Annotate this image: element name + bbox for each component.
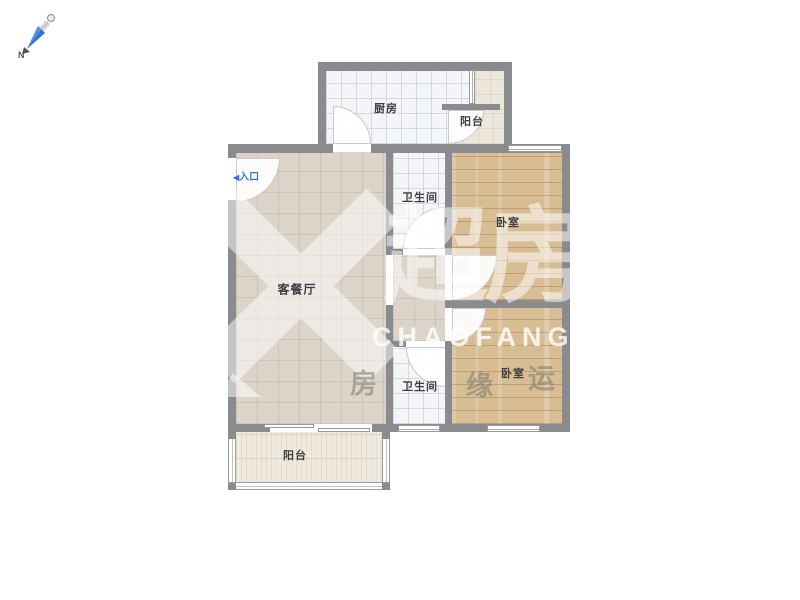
balcony-corner (228, 483, 236, 490)
compass-north-letter: N (18, 50, 25, 60)
brand-latin-watermark: CHAOFANG (372, 322, 575, 353)
slogan-char: 缘 (466, 364, 493, 403)
room-label-balcony-bottom: 阳台 (283, 447, 307, 463)
room-label-bedroom-top: 卧室 (496, 214, 520, 230)
wall (318, 62, 512, 71)
bedroom-bottom-window (487, 425, 540, 432)
wall (228, 144, 236, 158)
room-label-living-dining: 客餐厅 (277, 281, 316, 298)
wall (504, 62, 512, 144)
bottom-balcony-floor (236, 432, 382, 483)
room-label-balcony-top: 阳台 (460, 113, 484, 129)
room-label-bedroom-bottom: 卧室 (501, 365, 525, 381)
entry-label: ◀入口 (233, 168, 259, 183)
wall (445, 341, 452, 424)
floor-plan: 超房 CHAOFANG 房 缘 运 厨房 阳台 卫生间 卧室 客餐厅 卫生间 卧… (0, 0, 800, 600)
bathroom-bottom-window (398, 425, 440, 432)
slogan-char: 房 (350, 362, 377, 401)
wall (318, 62, 326, 144)
balcony-corner (382, 483, 390, 490)
slogan-char: 运 (528, 357, 555, 396)
sliding-door-panel (318, 428, 370, 432)
wall (442, 104, 500, 110)
kitchen-balcony-window (469, 70, 475, 104)
sliding-door-panel (264, 424, 314, 428)
bedroom-top-window (508, 145, 562, 152)
balcony-corner (382, 432, 390, 439)
balcony-corner (228, 432, 236, 439)
wall (228, 144, 333, 153)
room-label-kitchen: 厨房 (374, 100, 398, 116)
compass-icon: N (10, 5, 66, 61)
brand-name-watermark: 超房 (383, 192, 585, 323)
balcony-glazing-bottom (228, 482, 390, 490)
room-label-bathroom-top: 卫生间 (402, 189, 438, 205)
room-label-bathroom-bottom: 卫生间 (402, 378, 438, 394)
